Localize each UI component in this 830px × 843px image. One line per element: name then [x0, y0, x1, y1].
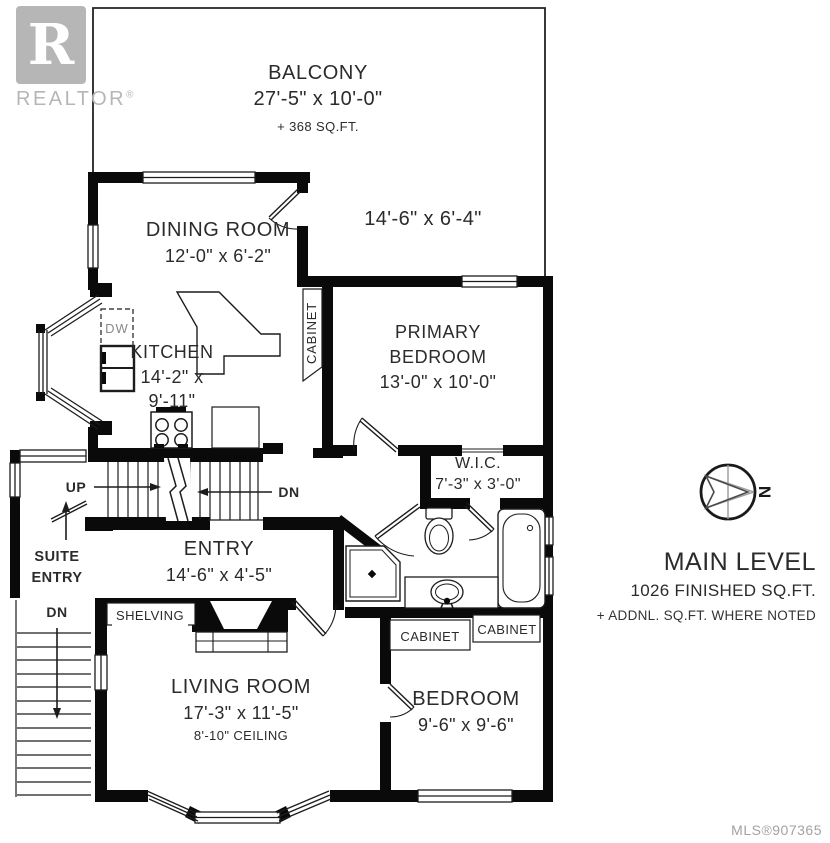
room-dims: 17'-3" x 11'-5"	[171, 700, 311, 726]
level-title: MAIN LEVEL	[597, 548, 816, 577]
balcony-label: BALCONY 27'-5" x 10'-0" + 368 SQ.FT.	[253, 60, 382, 137]
realtor-logo-letter: R	[28, 12, 75, 78]
room-dims: 9'-6" x 9'-6"	[412, 712, 520, 738]
stove-icon	[151, 407, 192, 448]
room-dims: 12'-0" x 6'-2"	[146, 243, 290, 269]
stairs-suite	[16, 600, 91, 797]
dn-suite-label: DN	[46, 604, 67, 620]
dishwasher-label: DW	[105, 319, 129, 339]
suite-entry-label: SUITE ENTRY	[31, 547, 82, 589]
registered-mark: ®	[126, 89, 136, 100]
area-note: + ADDNL. SQ.FT. WHERE NOTED	[597, 608, 816, 623]
title-block: MAIN LEVEL 1026 FINISHED SQ.FT. + ADDNL.…	[597, 548, 816, 623]
compass-icon	[701, 465, 755, 519]
dn-label: DN	[278, 484, 299, 500]
bathtub-icon	[498, 509, 545, 608]
compass-north-letter: N	[754, 486, 774, 498]
wic-label: W.I.C. 7'-3" x 3'-0"	[435, 453, 521, 495]
dining-label: DINING ROOM 12'-0" x 6'-2"	[146, 217, 290, 269]
fireplace	[192, 598, 288, 652]
room-name: BEDROOM	[412, 686, 520, 712]
room-name: W.I.C.	[435, 453, 521, 474]
cabinet-kitchen-label: CABINET	[302, 302, 322, 364]
room-name: BALCONY	[253, 60, 382, 86]
cabinet-bedroom-label-1: CABINET	[400, 627, 459, 647]
fridge-icon	[101, 346, 134, 391]
realtor-logo-word: REALTOR®	[16, 88, 126, 111]
room-note: + 368 SQ.FT.	[253, 117, 382, 137]
room-dims: 13'-0" x 10'-0"	[380, 370, 497, 395]
living-room-label: LIVING ROOM 17'-3" x 11'-5" 8'-10" CEILI…	[171, 674, 311, 746]
room-name: ENTRY	[166, 536, 272, 562]
up-label: UP	[66, 479, 86, 495]
shelving-label: SHELVING	[112, 606, 188, 626]
vanity-sink-icon	[405, 577, 498, 608]
room-dims: 27'-5" x 10'-0"	[253, 86, 382, 112]
cabinet-bedroom-label-2: CABINET	[477, 620, 536, 640]
room-name: BEDROOM	[380, 345, 497, 370]
room-dims: 7'-3" x 3'-0"	[435, 474, 521, 495]
room-name: DINING ROOM	[146, 217, 290, 243]
room-dims: 14'-2" x	[130, 365, 213, 389]
balcony-ext-dims: 14'-6" x 6'-4"	[364, 206, 482, 232]
realtor-logo-mark: R	[16, 6, 86, 84]
toilet-icon	[425, 508, 453, 554]
room-note: 8'-10" CEILING	[171, 726, 311, 746]
room-name: PRIMARY	[380, 320, 497, 345]
room-dims: 14'-6" x 4'-5"	[166, 562, 272, 588]
mls-number: MLS®907365	[731, 822, 822, 838]
room-name: KITCHEN	[130, 339, 213, 365]
primary-bedroom-label: PRIMARY BEDROOM 13'-0" x 10'-0"	[380, 320, 497, 395]
bedroom-label: BEDROOM 9'-6" x 9'-6"	[412, 686, 520, 738]
closet-rod	[462, 449, 503, 452]
floorplan-canvas: BALCONY 27'-5" x 10'-0" + 368 SQ.FT. 14'…	[0, 0, 830, 843]
realtor-logo: R REALTOR®	[16, 6, 126, 111]
shower-icon	[346, 546, 400, 601]
entry-label: ENTRY 14'-6" x 4'-5"	[166, 536, 272, 588]
finished-area: 1026 FINISHED SQ.FT.	[597, 581, 816, 601]
room-name: LIVING ROOM	[171, 674, 311, 700]
kitchen-counter	[212, 407, 259, 448]
kitchen-label: KITCHEN 14'-2" x 9'-11"	[130, 339, 213, 413]
room-dims: 9'-11"	[130, 389, 213, 413]
